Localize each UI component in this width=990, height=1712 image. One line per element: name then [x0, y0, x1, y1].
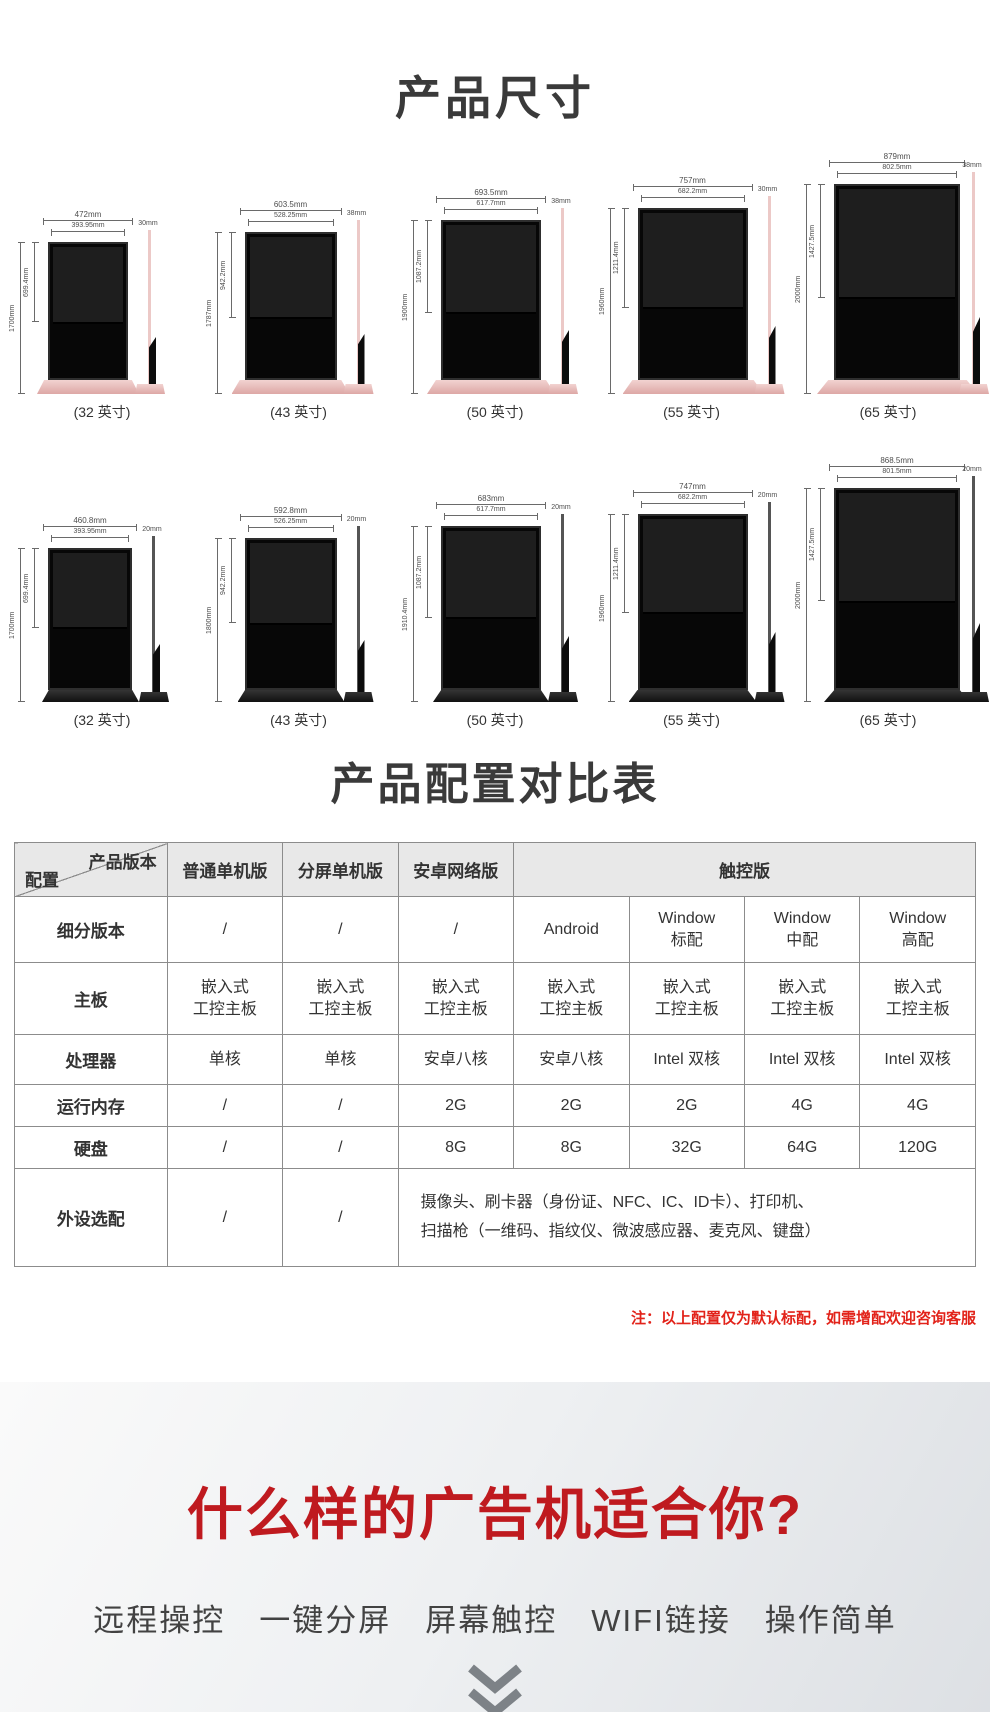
kiosk-side-base — [139, 692, 169, 702]
kiosk-size-label: (43 英寸) — [201, 402, 397, 422]
kiosk-side-depth-label: 20mm — [543, 504, 579, 511]
kiosk-screen-height-dim — [624, 208, 625, 308]
kiosk-screen-height-label: 942.2mm — [218, 538, 229, 623]
kiosk-screen — [643, 213, 743, 309]
spec-cell: / — [283, 897, 398, 963]
spec-cell: 4G — [744, 1085, 859, 1127]
spec-comparison-section: 产品配置对比表 产品版本配置普通单机版分屏单机版安卓网络版触控版细分版本///A… — [0, 748, 990, 1328]
kiosk-total-height-label: 1700mm — [7, 548, 18, 702]
kiosk-total-height-label: 1910.4mm — [400, 526, 411, 702]
spec-cell: 嵌入式 工控主板 — [860, 963, 976, 1035]
spec-cell: 8G — [514, 1127, 629, 1169]
spec-cell: Intel 双核 — [629, 1035, 744, 1085]
kiosk-outer-width-label: 879mm — [824, 152, 970, 161]
kiosk-base — [232, 380, 350, 394]
kiosk-outer-width-dim — [633, 186, 753, 187]
spec-cell: 嵌入式 工控主板 — [398, 963, 513, 1035]
kiosk-side-depth-label: 20mm — [134, 526, 170, 533]
kiosk-inner-width-dim — [248, 221, 334, 222]
product-detail-page: 产品尺寸 472mm393.95mm1700mm699.4mm30mm(32 英… — [0, 0, 990, 1712]
kiosk-outer-width-label: 592.8mm — [235, 506, 347, 515]
spec-cell: 单核 — [283, 1035, 398, 1085]
kiosk-outer-width-label: 757mm — [628, 176, 758, 185]
kiosk-outer-width-label: 460.8mm — [38, 516, 142, 525]
kiosk-front-view — [245, 538, 337, 690]
kiosk-screen — [250, 543, 332, 625]
promo-section: 什么样的广告机适合你? 远程操控一键分屏屏幕触控WIFI链接操作简单 — [0, 1382, 990, 1712]
kiosk-outer-width-label: 683mm — [431, 494, 551, 503]
kiosk-screen-height-label: 1427.5mm — [807, 184, 818, 298]
kiosk-total-height-label: 1700mm — [7, 242, 18, 394]
feature-item: 一键分屏 — [259, 1595, 391, 1640]
kiosk-base — [817, 380, 978, 394]
kiosk-inner-width-label: 528.25mm — [235, 212, 347, 219]
kiosk-side-depth-label: 38mm — [543, 198, 579, 205]
kiosk-screen-height-dim — [231, 232, 232, 318]
kiosk-inner-width-dim — [444, 515, 538, 516]
kiosk-base — [427, 380, 555, 394]
spec-cell: / — [167, 1169, 282, 1267]
kiosk-size-label: (55 英寸) — [594, 402, 790, 422]
spec-cell: Android — [514, 897, 629, 963]
kiosk-total-height-label: 2000mm — [793, 184, 804, 394]
kiosk-side-base — [755, 384, 785, 394]
kiosk-inner-width-label: 682.2mm — [628, 188, 758, 195]
kiosk-base — [238, 690, 345, 702]
kiosk-figure: 693.5mm617.7mm1900mm1087.2mm38mm(50 英寸) — [397, 152, 593, 424]
kiosk-inner-width-label: 526.25mm — [235, 518, 347, 525]
spec-table-row: 处理器单核单核安卓八核安卓八核Intel 双核Intel 双核Intel 双核 — [15, 1035, 976, 1085]
spec-cell: Window 标配 — [629, 897, 744, 963]
kiosk-screen — [250, 237, 332, 319]
kiosk-figure: 472mm393.95mm1700mm699.4mm30mm(32 英寸) — [4, 152, 200, 424]
spec-header-row: 产品版本配置普通单机版分屏单机版安卓网络版触控版 — [15, 843, 976, 897]
feature-item: 屏幕触控 — [425, 1595, 557, 1640]
kiosk-outer-width-label: 603.5mm — [235, 200, 347, 209]
spec-col-header: 普通单机版 — [167, 843, 282, 897]
spec-corner-bottom-label: 配置 — [25, 866, 59, 891]
spec-cell: 嵌入式 工控主板 — [629, 963, 744, 1035]
spec-cell: / — [283, 1085, 398, 1127]
spec-cell: / — [167, 1085, 282, 1127]
spec-cell: 64G — [744, 1127, 859, 1169]
kiosk-inner-width-dim — [248, 527, 334, 528]
spec-cell: Window 中配 — [744, 897, 859, 963]
feature-item: 远程操控 — [93, 1595, 225, 1640]
spec-row-label: 处理器 — [15, 1035, 168, 1085]
kiosk-outer-width-dim — [436, 198, 546, 199]
kiosk-size-label: (32 英寸) — [4, 710, 200, 730]
kiosk-screen — [446, 531, 536, 619]
kiosk-screen-height-dim — [624, 514, 625, 613]
spec-cell: 安卓八核 — [514, 1035, 629, 1085]
spec-table-body: 细分版本///AndroidWindow 标配Window 中配Window 高… — [15, 897, 976, 1267]
kiosk-front-view — [441, 220, 541, 380]
kiosk-outer-width-dim — [633, 492, 753, 493]
spec-row-label: 细分版本 — [15, 897, 168, 963]
kiosk-size-label: (55 英寸) — [594, 710, 790, 730]
kiosk-inner-width-label: 617.7mm — [431, 506, 551, 513]
kiosk-side-base — [755, 692, 785, 702]
spec-cell: 2G — [629, 1085, 744, 1127]
kiosk-total-height-label: 1960mm — [597, 208, 608, 394]
kiosk-size-label: (43 英寸) — [201, 710, 397, 730]
spec-row-label: 运行内存 — [15, 1085, 168, 1127]
kiosk-inner-width-label: 801.5mm — [824, 468, 970, 475]
kiosk-inner-width-dim — [837, 477, 957, 478]
kiosk-side-base — [959, 384, 989, 394]
spec-cell: 120G — [860, 1127, 976, 1169]
kiosk-side-depth-label: 38mm — [954, 162, 990, 169]
kiosk-figure: 592.8mm526.25mm1800mm942.2mm20mm(43 英寸) — [201, 432, 397, 732]
kiosk-inner-width-dim — [837, 173, 957, 174]
kiosk-inner-width-label: 617.7mm — [431, 200, 551, 207]
spec-cell: 嵌入式 工控主板 — [514, 963, 629, 1035]
kiosk-screen — [839, 493, 955, 603]
kiosk-outer-width-label: 472mm — [38, 210, 138, 219]
feature-item: 操作简单 — [765, 1595, 897, 1640]
kiosk-size-label: (32 英寸) — [4, 402, 200, 422]
spec-table-row: 外设选配//摄像头、刷卡器（身份证、NFC、IC、ID卡）、打印机、 扫描枪（一… — [15, 1169, 976, 1267]
kiosk-screen — [53, 247, 123, 324]
spec-title: 产品配置对比表 — [0, 748, 990, 812]
kiosk-side-depth-label: 30mm — [130, 220, 166, 227]
kiosk-outer-width-dim — [43, 220, 133, 221]
spec-table-head: 产品版本配置普通单机版分屏单机版安卓网络版触控版 — [15, 843, 976, 897]
kiosk-outer-width-dim — [829, 466, 965, 467]
kiosk-side-depth-label: 20mm — [954, 466, 990, 473]
dimensions-row-rear: 460.8mm393.95mm1700mm699.4mm20mm(32 英寸)5… — [0, 432, 990, 732]
kiosk-size-label: (65 英寸) — [790, 402, 986, 422]
spec-col-header: 分屏单机版 — [283, 843, 398, 897]
spec-col-header: 安卓网络版 — [398, 843, 513, 897]
kiosk-front-view — [638, 514, 748, 690]
kiosk-outer-width-label: 868.5mm — [824, 456, 970, 465]
kiosk-screen-height-label: 1087.2mm — [414, 526, 425, 618]
kiosk-inner-width-dim — [51, 537, 129, 538]
spec-cell: Intel 双核 — [860, 1035, 976, 1085]
kiosk-screen-height-dim — [820, 184, 821, 298]
spec-cell: 单核 — [167, 1035, 282, 1085]
kiosk-screen — [643, 519, 743, 614]
kiosk-outer-width-dim — [43, 526, 137, 527]
feature-item: WIFI链接 — [591, 1595, 730, 1640]
kiosk-outer-width-dim — [829, 162, 965, 163]
spec-table-row: 硬盘//8G8G32G64G120G — [15, 1127, 976, 1169]
kiosk-screen-height-label: 1211.4mm — [611, 514, 622, 613]
kiosk-screen-height-dim — [231, 538, 232, 623]
promo-title: 什么样的广告机适合你? — [0, 1470, 990, 1551]
kiosk-inner-width-label: 393.95mm — [38, 528, 142, 535]
kiosk-side-depth-label: 20mm — [750, 492, 786, 499]
spec-merged-cell: 摄像头、刷卡器（身份证、NFC、IC、ID卡）、打印机、 扫描枪（一维码、指纹仪… — [398, 1169, 975, 1267]
kiosk-side-base — [344, 384, 374, 394]
kiosk-size-label: (65 英寸) — [790, 710, 986, 730]
product-dimensions-section: 产品尺寸 472mm393.95mm1700mm699.4mm30mm(32 英… — [0, 0, 990, 732]
spec-corner-top-label: 产品版本 — [89, 848, 157, 873]
dimensions-title: 产品尺寸 — [0, 62, 990, 128]
spec-cell: / — [167, 1127, 282, 1169]
kiosk-screen-height-label: 1211.4mm — [611, 208, 622, 308]
spec-table-row: 运行内存//2G2G2G4G4G — [15, 1085, 976, 1127]
kiosk-figure: 868.5mm801.5mm2000mm1427.5mm20mm(65 英寸) — [790, 432, 986, 732]
kiosk-figure: 603.5mm528.25mm1787mm942.2mm38mm(43 英寸) — [201, 152, 397, 424]
kiosk-base — [433, 690, 549, 702]
spec-cell: 嵌入式 工控主板 — [744, 963, 859, 1035]
spec-cell: 32G — [629, 1127, 744, 1169]
spec-table-row: 细分版本///AndroidWindow 标配Window 中配Window 高… — [15, 897, 976, 963]
kiosk-outer-width-dim — [240, 516, 342, 517]
kiosk-total-height-label: 1787mm — [204, 232, 215, 394]
kiosk-inner-width-dim — [444, 209, 538, 210]
kiosk-figure: 747mm682.2mm1960mm1211.4mm20mm(55 英寸) — [594, 432, 790, 732]
spec-corner-cell: 产品版本配置 — [15, 843, 168, 897]
spec-table-row: 主板嵌入式 工控主板嵌入式 工控主板嵌入式 工控主板嵌入式 工控主板嵌入式 工控… — [15, 963, 976, 1035]
kiosk-figure: 879mm802.5mm2000mm1427.5mm38mm(65 英寸) — [790, 152, 986, 424]
spec-row-label: 硬盘 — [15, 1127, 168, 1169]
kiosk-inner-width-dim — [641, 503, 745, 504]
kiosk-screen-height-label: 699.4mm — [21, 548, 32, 628]
kiosk-front-view — [638, 208, 748, 380]
kiosk-front-view — [834, 184, 960, 380]
spec-cell: 8G — [398, 1127, 513, 1169]
kiosk-side-depth-label: 38mm — [339, 210, 375, 217]
spec-cell: 4G — [860, 1085, 976, 1127]
kiosk-outer-width-dim — [436, 504, 546, 505]
double-chevron-down-icon — [0, 1662, 990, 1712]
kiosk-side-base — [548, 384, 578, 394]
kiosk-total-height-label: 1960mm — [597, 514, 608, 702]
kiosk-screen-height-label: 699.4mm — [21, 242, 32, 322]
kiosk-screen-height-dim — [34, 242, 35, 322]
kiosk-side-depth-label: 30mm — [750, 186, 786, 193]
kiosk-screen — [446, 225, 536, 314]
kiosk-total-height-label: 2000mm — [793, 488, 804, 702]
spec-cell: 2G — [398, 1085, 513, 1127]
kiosk-screen-height-dim — [820, 488, 821, 601]
kiosk-front-view — [834, 488, 960, 690]
kiosk-inner-width-label: 802.5mm — [824, 164, 970, 171]
kiosk-base — [629, 690, 757, 702]
kiosk-base — [824, 690, 970, 702]
spec-touch-group-header: 触控版 — [514, 843, 976, 897]
kiosk-screen-height-label: 942.2mm — [218, 232, 229, 318]
kiosk-front-view — [245, 232, 337, 380]
spec-cell: / — [398, 897, 513, 963]
kiosk-base — [37, 380, 139, 394]
kiosk-front-view — [48, 242, 128, 380]
kiosk-outer-width-label: 693.5mm — [431, 188, 551, 197]
kiosk-inner-width-label: 393.95mm — [38, 222, 138, 229]
kiosk-inner-width-dim — [51, 231, 125, 232]
spec-cell: 嵌入式 工控主板 — [167, 963, 282, 1035]
kiosk-total-height-label: 1900mm — [400, 220, 411, 394]
kiosk-outer-width-dim — [240, 210, 342, 211]
kiosk-side-base — [548, 692, 578, 702]
kiosk-screen-height-dim — [34, 548, 35, 628]
chevron-down-icon — [457, 1662, 533, 1712]
kiosk-total-height-label: 1800mm — [204, 538, 215, 702]
kiosk-outer-width-label: 747mm — [628, 482, 758, 491]
spec-row-label: 主板 — [15, 963, 168, 1035]
kiosk-size-label: (50 英寸) — [397, 402, 593, 422]
kiosk-side-base — [344, 692, 374, 702]
spec-row-label: 外设选配 — [15, 1169, 168, 1267]
kiosk-side-base — [959, 692, 989, 702]
spec-cell: Window 高配 — [860, 897, 976, 963]
spec-cell: 嵌入式 工控主板 — [283, 963, 398, 1035]
kiosk-front-view — [441, 526, 541, 690]
spec-comparison-table: 产品版本配置普通单机版分屏单机版安卓网络版触控版细分版本///AndroidWi… — [14, 842, 976, 1267]
dimensions-row-front: 472mm393.95mm1700mm699.4mm30mm(32 英寸)603… — [0, 152, 990, 424]
spec-note: 注：以上配置仅为默认标配，如需增配欢迎咨询客服 — [14, 1307, 976, 1328]
kiosk-base — [42, 690, 139, 702]
kiosk-screen — [53, 553, 127, 629]
kiosk-base — [623, 380, 764, 394]
kiosk-size-label: (50 英寸) — [397, 710, 593, 730]
spec-cell: / — [283, 1169, 398, 1267]
kiosk-inner-width-dim — [641, 197, 745, 198]
kiosk-screen-height-dim — [427, 526, 428, 618]
kiosk-screen-height-label: 1087.2mm — [414, 220, 425, 313]
spec-cell: Intel 双核 — [744, 1035, 859, 1085]
spec-cell: / — [167, 897, 282, 963]
kiosk-front-view — [48, 548, 132, 690]
kiosk-screen — [839, 189, 955, 299]
kiosk-figure: 683mm617.7mm1910.4mm1087.2mm20mm(50 英寸) — [397, 432, 593, 732]
feature-list: 远程操控一键分屏屏幕触控WIFI链接操作简单 — [0, 1595, 990, 1640]
kiosk-inner-width-label: 682.2mm — [628, 494, 758, 501]
kiosk-figure: 460.8mm393.95mm1700mm699.4mm20mm(32 英寸) — [4, 432, 200, 732]
kiosk-figure: 757mm682.2mm1960mm1211.4mm30mm(55 英寸) — [594, 152, 790, 424]
kiosk-screen-height-label: 1427.5mm — [807, 488, 818, 601]
kiosk-screen-height-dim — [427, 220, 428, 313]
spec-cell: 安卓八核 — [398, 1035, 513, 1085]
spec-cell: / — [283, 1127, 398, 1169]
kiosk-side-depth-label: 20mm — [339, 516, 375, 523]
spec-cell: 2G — [514, 1085, 629, 1127]
kiosk-side-base — [135, 384, 165, 394]
